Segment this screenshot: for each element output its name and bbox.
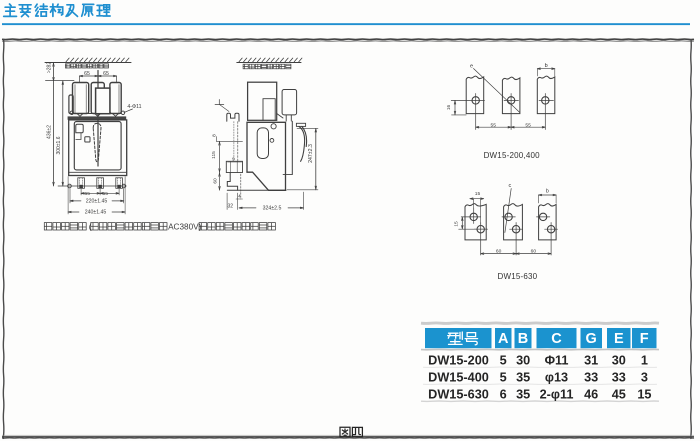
svg-text:DW15-400: DW15-400 (428, 370, 489, 384)
svg-text:>282: >282 (46, 62, 52, 73)
svg-text:AC380V): AC380V) (168, 222, 201, 231)
svg-text:35: 35 (516, 370, 530, 384)
svg-text:33: 33 (584, 370, 598, 384)
svg-text:65: 65 (102, 191, 108, 197)
svg-text:DW15-200,400: DW15-200,400 (484, 151, 541, 160)
svg-text:65: 65 (103, 71, 109, 77)
svg-text:DW15-630: DW15-630 (428, 387, 489, 401)
svg-text:15: 15 (475, 191, 481, 197)
svg-text:5: 5 (500, 370, 507, 384)
svg-text:φ13: φ13 (545, 370, 568, 384)
svg-text:45: 45 (612, 387, 626, 401)
svg-text:15: 15 (454, 221, 460, 227)
svg-text:e: e (470, 64, 473, 70)
svg-text:G: G (586, 331, 597, 347)
svg-text:32: 32 (228, 204, 234, 210)
svg-text:DW15-200: DW15-200 (428, 353, 489, 367)
svg-text:33: 33 (612, 370, 626, 384)
svg-text:300±1.6: 300±1.6 (56, 136, 62, 154)
svg-text:55: 55 (490, 122, 496, 128)
svg-text:60: 60 (213, 178, 219, 184)
svg-text:115: 115 (211, 151, 217, 159)
svg-text:30: 30 (612, 353, 626, 367)
svg-text:31: 31 (584, 353, 598, 367)
svg-text:16: 16 (446, 105, 452, 111)
svg-text:46: 46 (584, 387, 598, 401)
svg-text:55: 55 (525, 122, 531, 128)
svg-text:60: 60 (496, 248, 502, 254)
svg-text:60: 60 (531, 248, 537, 254)
svg-text:1: 1 (641, 353, 648, 367)
svg-text:65: 65 (84, 71, 90, 77)
svg-text:Φ11: Φ11 (545, 353, 569, 367)
svg-text:220±1.45: 220±1.45 (86, 199, 108, 205)
svg-text:65: 65 (84, 191, 90, 197)
svg-text:324±2.5: 324±2.5 (263, 206, 282, 212)
svg-text:A: A (498, 331, 509, 347)
svg-text:6: 6 (500, 387, 507, 401)
svg-text:E: E (614, 331, 624, 347)
svg-text:30: 30 (516, 353, 530, 367)
svg-text:15: 15 (637, 387, 651, 401)
svg-text:B: B (518, 331, 528, 347)
svg-text:3: 3 (641, 370, 648, 384)
svg-text:b: b (545, 63, 548, 69)
svg-text:F: F (640, 331, 649, 347)
svg-text:35: 35 (516, 387, 530, 401)
svg-text:4-Φ11: 4-Φ11 (127, 104, 141, 110)
svg-text:DW15-630: DW15-630 (497, 272, 537, 281)
svg-text:240±1.45: 240±1.45 (85, 210, 107, 216)
svg-text:436±2: 436±2 (47, 125, 53, 139)
svg-text:5: 5 (500, 353, 507, 367)
svg-text:b: b (546, 189, 549, 195)
svg-text:2-φ11: 2-φ11 (540, 387, 574, 401)
svg-text:247±2.3: 247±2.3 (308, 144, 314, 163)
svg-text:C: C (551, 331, 562, 347)
